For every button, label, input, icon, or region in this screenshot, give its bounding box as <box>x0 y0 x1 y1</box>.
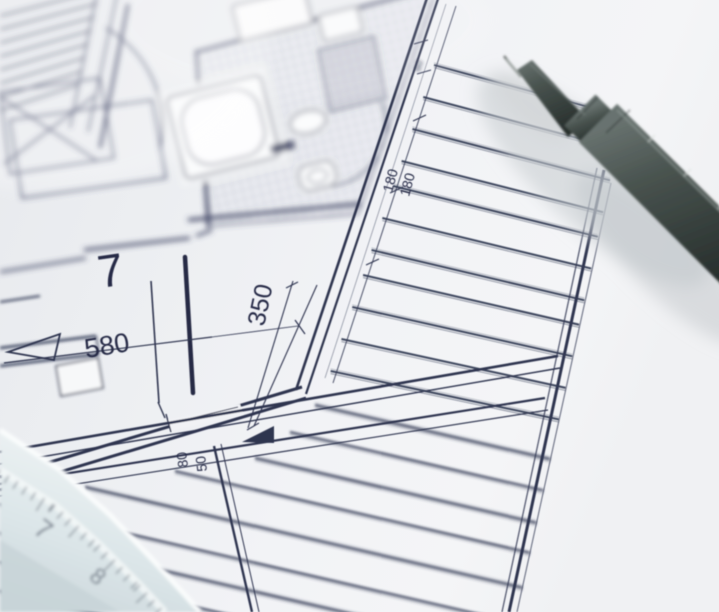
dimension-label-50: 50 <box>192 455 210 473</box>
scene-canvas: 7 580 350 180 180 80 50 60 <box>0 0 719 612</box>
photo-of-floor-plan: 7 580 350 180 180 80 50 60 <box>0 0 719 612</box>
dimension-label-80: 80 <box>173 451 191 469</box>
